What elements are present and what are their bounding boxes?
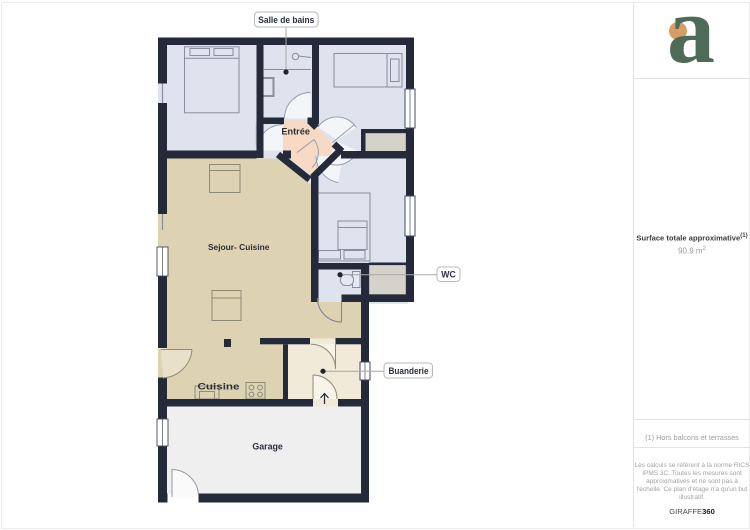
svg-text:Cuisine: Cuisine: [198, 381, 240, 391]
svg-text:WC: WC: [441, 270, 456, 280]
svg-text:Entrée: Entrée: [281, 127, 310, 137]
svg-text:Garage: Garage: [252, 442, 283, 452]
svg-text:Salle de bains: Salle de bains: [258, 15, 314, 25]
svg-text:Sejour- Cuisine: Sejour- Cuisine: [208, 242, 270, 252]
svg-text:Buanderie: Buanderie: [389, 366, 429, 376]
